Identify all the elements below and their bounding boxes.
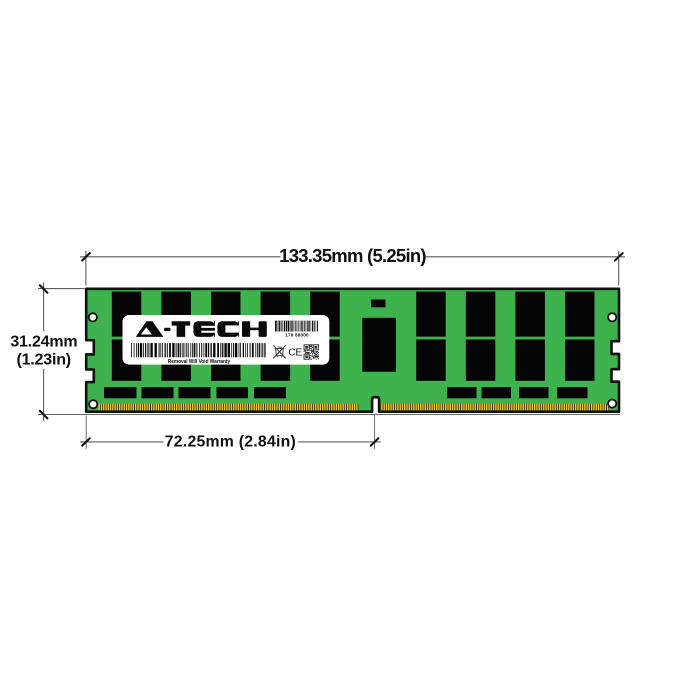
svg-text:Removal Will Void Warranty: Removal Will Void Warranty xyxy=(168,359,231,365)
svg-text:CE: CE xyxy=(288,347,302,358)
svg-text:31.24mm: 31.24mm xyxy=(10,334,77,351)
svg-text:(1.23in): (1.23in) xyxy=(16,351,70,368)
svg-text:72.25mm (2.84in): 72.25mm (2.84in) xyxy=(165,434,296,451)
svg-text:133.35mm (5.25in): 133.35mm (5.25in) xyxy=(279,245,426,266)
svg-text:179 88000: 179 88000 xyxy=(285,332,309,337)
